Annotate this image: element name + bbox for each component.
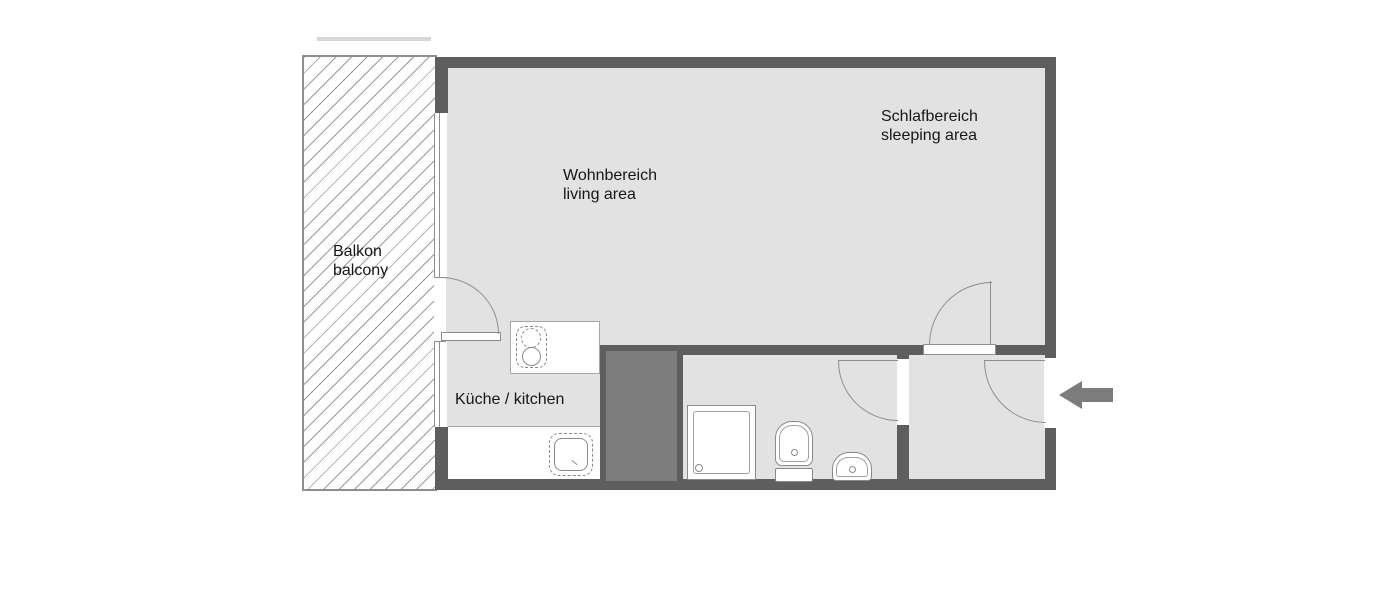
toilet-drain-icon bbox=[791, 449, 798, 456]
window-tick-bottom bbox=[434, 341, 446, 342]
window-strip-upper bbox=[434, 113, 447, 277]
shower-drain-icon bbox=[695, 464, 703, 472]
sleeping-label-en: sleeping area bbox=[881, 126, 978, 145]
kitchen-label: Küche / kitchen bbox=[455, 390, 564, 409]
stove-burner-bottom-icon bbox=[522, 347, 541, 366]
window-strip-lower bbox=[434, 341, 447, 427]
stove-burner-top-icon bbox=[521, 328, 541, 348]
balcony-label-en: balcony bbox=[333, 261, 388, 280]
entrance-door-opening bbox=[1044, 358, 1058, 428]
shaft-icon bbox=[606, 351, 677, 481]
toilet-bowl bbox=[779, 425, 809, 462]
bathroom-door-opening bbox=[897, 359, 909, 425]
balcony-overhang-line bbox=[317, 37, 431, 41]
floor-plan: Balkon balcony bbox=[0, 0, 1400, 600]
wall-top bbox=[435, 57, 1056, 68]
wall-hall-top bbox=[996, 345, 1045, 355]
kitchen-sink-basin bbox=[554, 438, 588, 471]
washbasin-drain-icon bbox=[849, 466, 856, 473]
living-area-label: Wohnbereich living area bbox=[563, 166, 657, 204]
sleeping-area-label: Schlafbereich sleeping area bbox=[881, 107, 978, 145]
window-line-upper bbox=[439, 113, 440, 277]
sleeping-label-de: Schlafbereich bbox=[881, 107, 978, 126]
window-line-lower bbox=[439, 341, 440, 427]
wall-left-upper bbox=[435, 57, 448, 113]
balcony-label: Balkon balcony bbox=[333, 242, 388, 280]
kitchen-label-text: Küche / kitchen bbox=[455, 390, 564, 409]
balcony-label-de: Balkon bbox=[333, 242, 388, 261]
wall-bottom bbox=[435, 479, 1056, 490]
living-label-de: Wohnbereich bbox=[563, 166, 657, 185]
room-hall-door-threshold bbox=[923, 344, 996, 355]
living-label-en: living area bbox=[563, 185, 657, 204]
toilet-tank bbox=[775, 468, 813, 482]
entrance-arrow-icon bbox=[1059, 381, 1113, 409]
wall-left-lower bbox=[435, 427, 448, 490]
